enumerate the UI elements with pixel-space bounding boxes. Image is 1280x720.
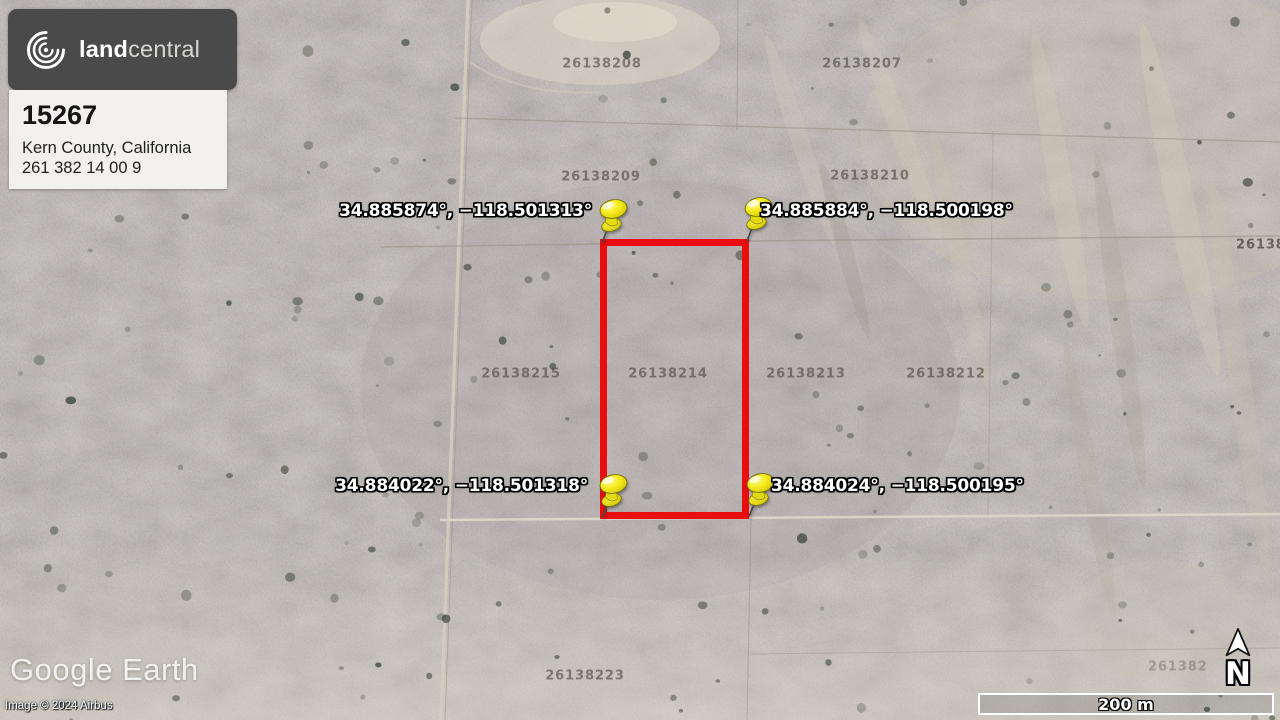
parcel-number: 26138210 — [830, 169, 910, 184]
coordinate-label-top-left: 34.885874°, −118.501313° — [339, 201, 592, 221]
google-earth-logo: Google Earth — [10, 652, 199, 688]
scale-bar-label: 200 m — [1098, 695, 1154, 714]
coordinate-label-top-right: 34.885884°, −118.500198° — [760, 201, 1013, 221]
parcel-number: 26138212 — [906, 367, 986, 382]
landcentral-wordmark: landcentral — [79, 36, 200, 63]
parcel-number: 26138208 — [562, 57, 642, 72]
scale-bar: 200 m — [978, 693, 1274, 715]
north-label: N — [1216, 660, 1260, 689]
parcel-number: 26138213 — [766, 367, 846, 382]
imagery-attribution: Image © 2024 Airbus — [5, 700, 113, 712]
listing-id: 15267 — [22, 100, 227, 131]
north-arrow-icon — [1222, 628, 1254, 658]
parcel-number: 26138223 — [545, 669, 625, 684]
parcel-number: 26138215 — [481, 367, 561, 382]
coordinate-label-bottom-left: 34.884022°, −118.501318° — [335, 476, 588, 496]
map-pin-bottom-left[interactable] — [595, 474, 633, 520]
wordmark-central: central — [128, 36, 200, 62]
parcel-number: 26138207 — [822, 57, 902, 72]
landcentral-logo: landcentral — [8, 9, 237, 90]
parcel-number-clipped: 261382 — [1148, 660, 1208, 675]
landcentral-swirl-icon — [25, 29, 67, 71]
map-pin-top-left[interactable] — [595, 199, 633, 245]
parcel-number: 26138209 — [561, 170, 641, 185]
google-earth-viewport[interactable]: 26138208 26138207 26138209 26138210 2613… — [0, 0, 1280, 720]
listing-apn: 261 382 14 00 9 — [22, 158, 227, 178]
north-indicator[interactable]: N — [1216, 628, 1260, 689]
wordmark-land: land — [79, 36, 128, 62]
coordinate-label-bottom-right: 34.884024°, −118.500195° — [771, 476, 1024, 496]
listing-details: 15267 Kern County, California 261 382 14… — [9, 90, 227, 189]
listing-location: Kern County, California — [22, 138, 227, 158]
parcel-number-clipped: 261382 — [1236, 238, 1280, 253]
listing-card: landcentral 15267 Kern County, Californi… — [8, 9, 237, 189]
